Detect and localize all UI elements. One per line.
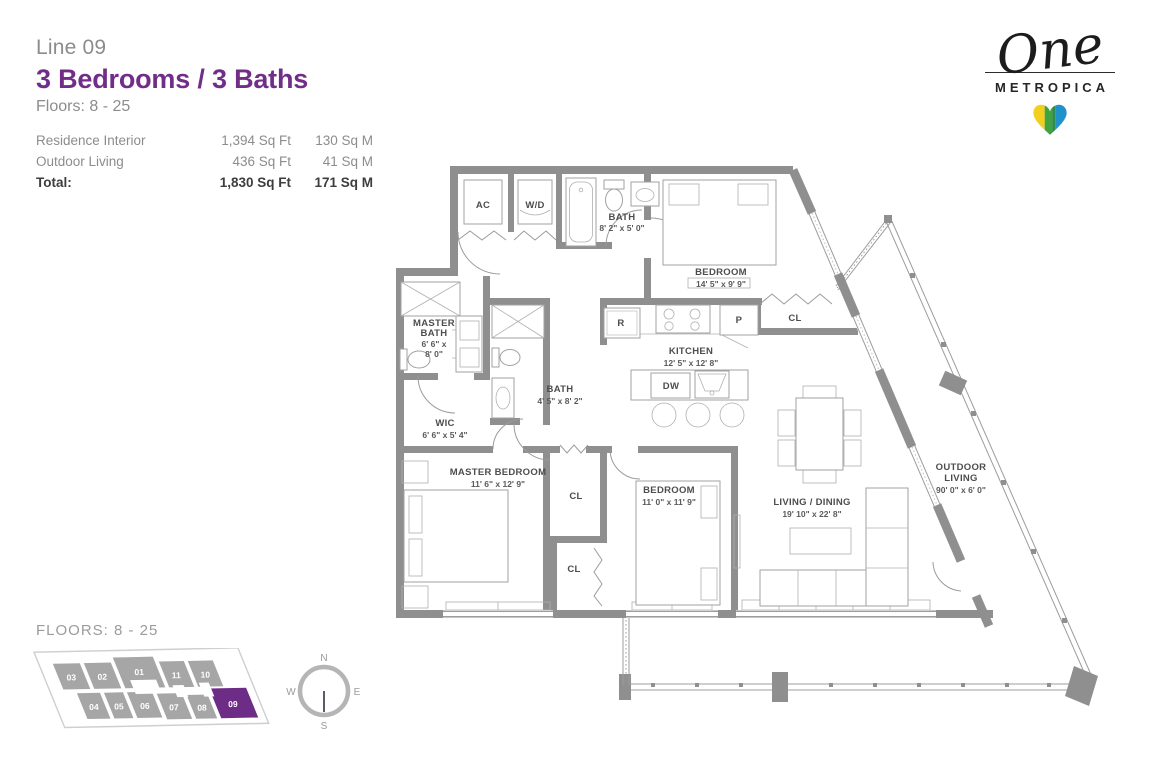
area-row-total: Total: 1,830 Sq Ft 171 Sq M	[36, 172, 376, 193]
key-label-06: 06	[140, 701, 150, 711]
bathtub	[566, 178, 596, 246]
key-plan-units	[34, 648, 269, 728]
area-table: Residence Interior 1,394 Sq Ft 130 Sq M …	[36, 130, 376, 193]
room-dims: 19' 10" x 22' 8"	[782, 509, 841, 519]
room-dims: 11' 0" x 11' 9"	[642, 497, 696, 507]
master-shower	[401, 282, 460, 316]
room-label: BEDROOM	[643, 485, 695, 496]
floors-range: Floors: 8 - 25	[36, 98, 376, 116]
room-label: KITCHEN	[669, 346, 713, 357]
bath2-shower	[492, 305, 544, 338]
room-label: BATH	[421, 328, 448, 339]
area-sqm: 130 Sq M	[291, 130, 373, 151]
room-label: OUTDOOR	[936, 462, 987, 473]
area-sqm: 171 Sq M	[291, 172, 373, 193]
floors-footer-label: FLOORS: 8 - 25	[36, 622, 158, 639]
key-label-05: 05	[114, 701, 124, 711]
compass-s: S	[321, 721, 328, 732]
brand-script-one: One	[972, 13, 1128, 89]
room-dims: 8' 0"	[425, 349, 443, 359]
kitchen-island	[631, 370, 748, 427]
area-label: Total:	[36, 172, 186, 193]
header: Line 09 3 Bedrooms / 3 Baths Floors: 8 -…	[36, 36, 376, 193]
stool	[686, 403, 710, 427]
area-label: Residence Interior	[36, 130, 186, 151]
room-dims: 11' 6" x 12' 9"	[471, 479, 525, 489]
room-label: W/D	[525, 200, 544, 211]
bath2-toilet	[492, 348, 520, 367]
room-label: BEDROOM	[695, 267, 747, 278]
room-label: DW	[663, 381, 679, 392]
toilet	[604, 180, 624, 211]
bath2-sink	[492, 378, 514, 418]
room-label: AC	[476, 200, 490, 211]
room-label: LIVING / DINING	[773, 497, 850, 508]
island-sink	[695, 371, 729, 398]
room-dims: 8' 2" x 5' 0"	[599, 223, 644, 233]
room-label: CL	[569, 491, 582, 502]
room-label: MASTER BEDROOM	[450, 467, 547, 478]
room-dims: 90' 0" x 6' 0"	[936, 485, 986, 495]
room-label: BATH	[609, 212, 636, 223]
page-title: 3 Bedrooms / 3 Baths	[36, 64, 376, 95]
compass-w: W	[286, 687, 296, 698]
room-dims: 12' 5" x 12' 8"	[664, 358, 719, 368]
room-label: CL	[788, 313, 801, 324]
heart-leaf-icon	[1030, 103, 1070, 137]
line-label: Line 09	[36, 36, 376, 60]
key-label-09: 09	[228, 699, 238, 709]
stool	[652, 403, 676, 427]
key-plan: 03 02 01 11 10 04 05 06 07 08 09	[30, 648, 280, 748]
room-label: BATH	[547, 384, 574, 395]
room-dims: 14' 5" x 9' 9"	[696, 279, 746, 289]
room-label: P	[736, 315, 743, 326]
area-sqm: 41 Sq M	[291, 151, 373, 172]
area-sqft: 1,394 Sq Ft	[186, 130, 291, 151]
key-label-08: 08	[197, 703, 207, 713]
room-dims: 6' 6" x 5' 4"	[422, 430, 467, 440]
area-row-interior: Residence Interior 1,394 Sq Ft 130 Sq M	[36, 130, 376, 151]
area-row-outdoor: Outdoor Living 436 Sq Ft 41 Sq M	[36, 151, 376, 172]
balcony-railing	[619, 215, 1098, 706]
room-label: LIVING	[944, 473, 977, 484]
room-label: CL	[567, 564, 580, 575]
key-label-04: 04	[89, 702, 99, 712]
bath1-sink	[631, 182, 659, 206]
stove	[656, 305, 710, 333]
floor-plan: AC W/D BATH 8' 2" x 5' 0" BEDROOM 14' 5"…	[388, 158, 1108, 714]
master-vanity	[452, 316, 482, 372]
area-sqft: 1,830 Sq Ft	[186, 172, 291, 193]
key-label-02: 02	[97, 672, 107, 682]
area-label: Outdoor Living	[36, 151, 186, 172]
stool	[720, 403, 744, 427]
room-label: R	[617, 318, 624, 329]
key-label-03: 03	[66, 672, 76, 682]
coffee-table	[790, 528, 851, 554]
key-label-07: 07	[169, 702, 179, 712]
room-label: WIC	[435, 418, 454, 429]
key-label-11: 11	[172, 670, 181, 680]
room-dims: 6' 6" x	[422, 339, 447, 349]
room-dims: 4' 5" x 8' 2"	[537, 396, 582, 406]
brand-logo: One METROPICA	[975, 22, 1125, 142]
compass-rose: N E S W	[282, 648, 366, 732]
key-label-01: 01	[134, 667, 144, 677]
area-sqft: 436 Sq Ft	[186, 151, 291, 172]
key-label-10: 10	[200, 669, 210, 679]
compass-e: E	[354, 687, 361, 698]
dining-table	[778, 386, 861, 483]
compass-n: N	[320, 653, 327, 664]
